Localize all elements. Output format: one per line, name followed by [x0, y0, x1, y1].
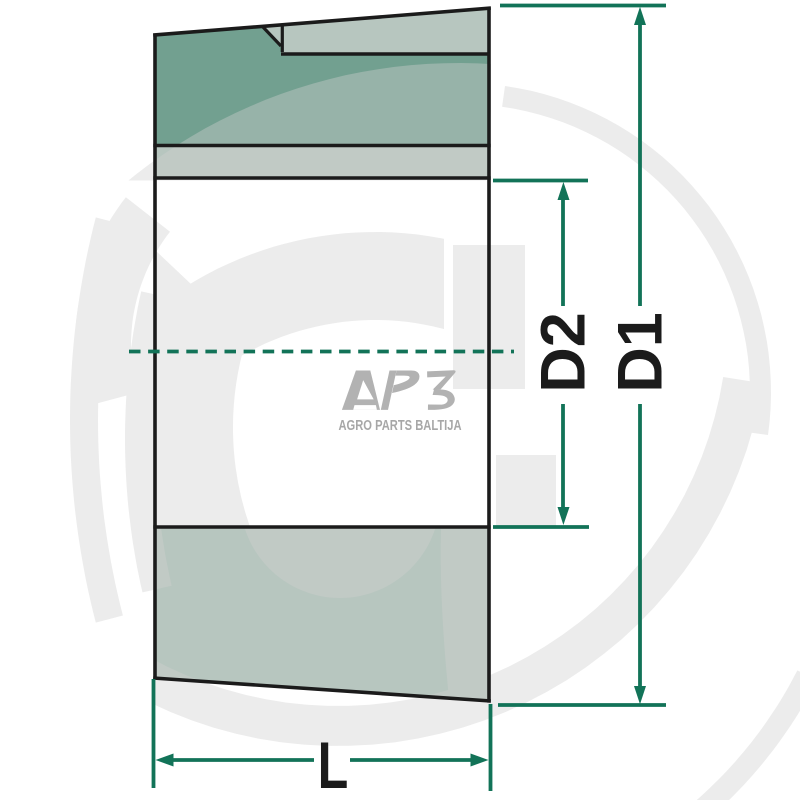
- svg-text:AGRO PARTS BALTIJA: AGRO PARTS BALTIJA: [338, 416, 461, 433]
- svg-text:D2: D2: [529, 312, 599, 393]
- svg-text:D1: D1: [606, 312, 676, 393]
- svg-text:L: L: [318, 729, 349, 800]
